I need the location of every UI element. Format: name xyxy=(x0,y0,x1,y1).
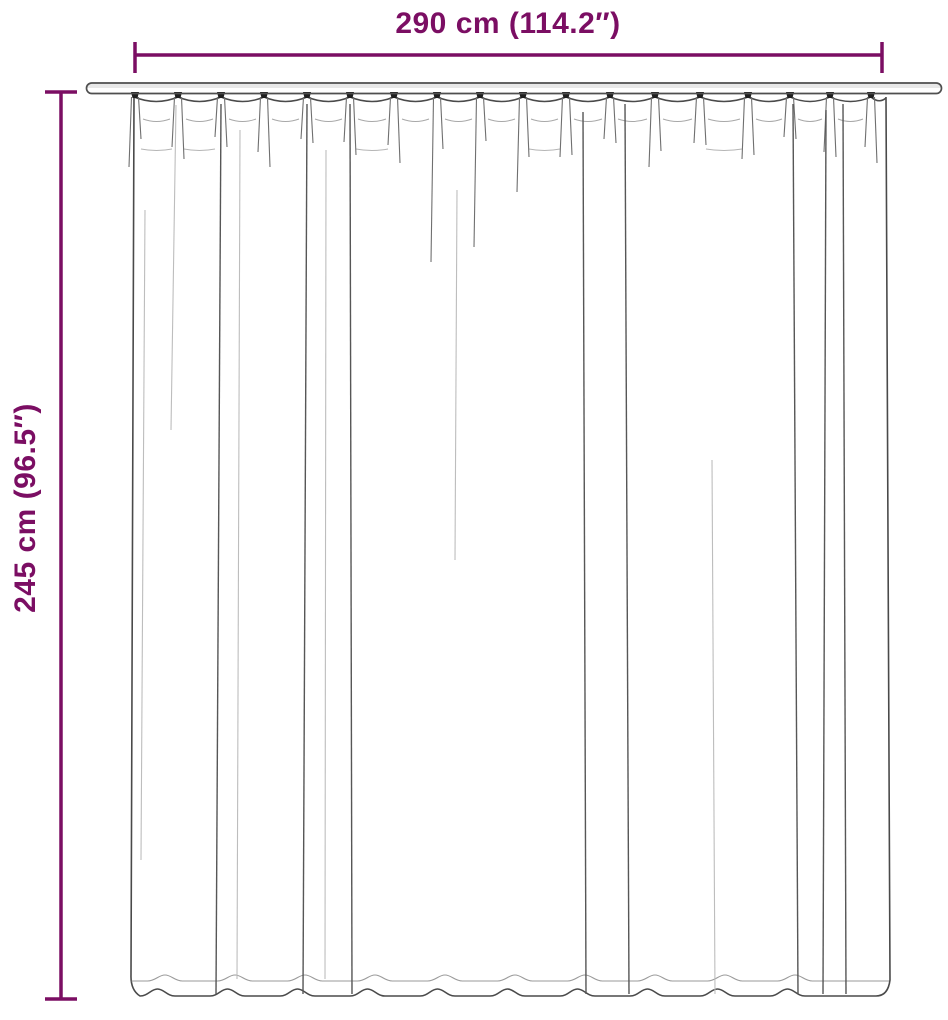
height-dimension-label: 245 cm (96.5″) xyxy=(7,348,45,668)
width-dimension-line xyxy=(135,42,882,73)
width-dimension-label: 290 cm (114.2″) xyxy=(308,5,708,43)
product-dimension-diagram: 290 cm (114.2″) 245 cm (96.5″) xyxy=(0,0,948,1020)
curtain-illustration xyxy=(0,0,948,1020)
curtain-drawing xyxy=(129,92,890,996)
curtain-rod xyxy=(87,83,942,94)
height-dimension-line xyxy=(45,92,77,999)
